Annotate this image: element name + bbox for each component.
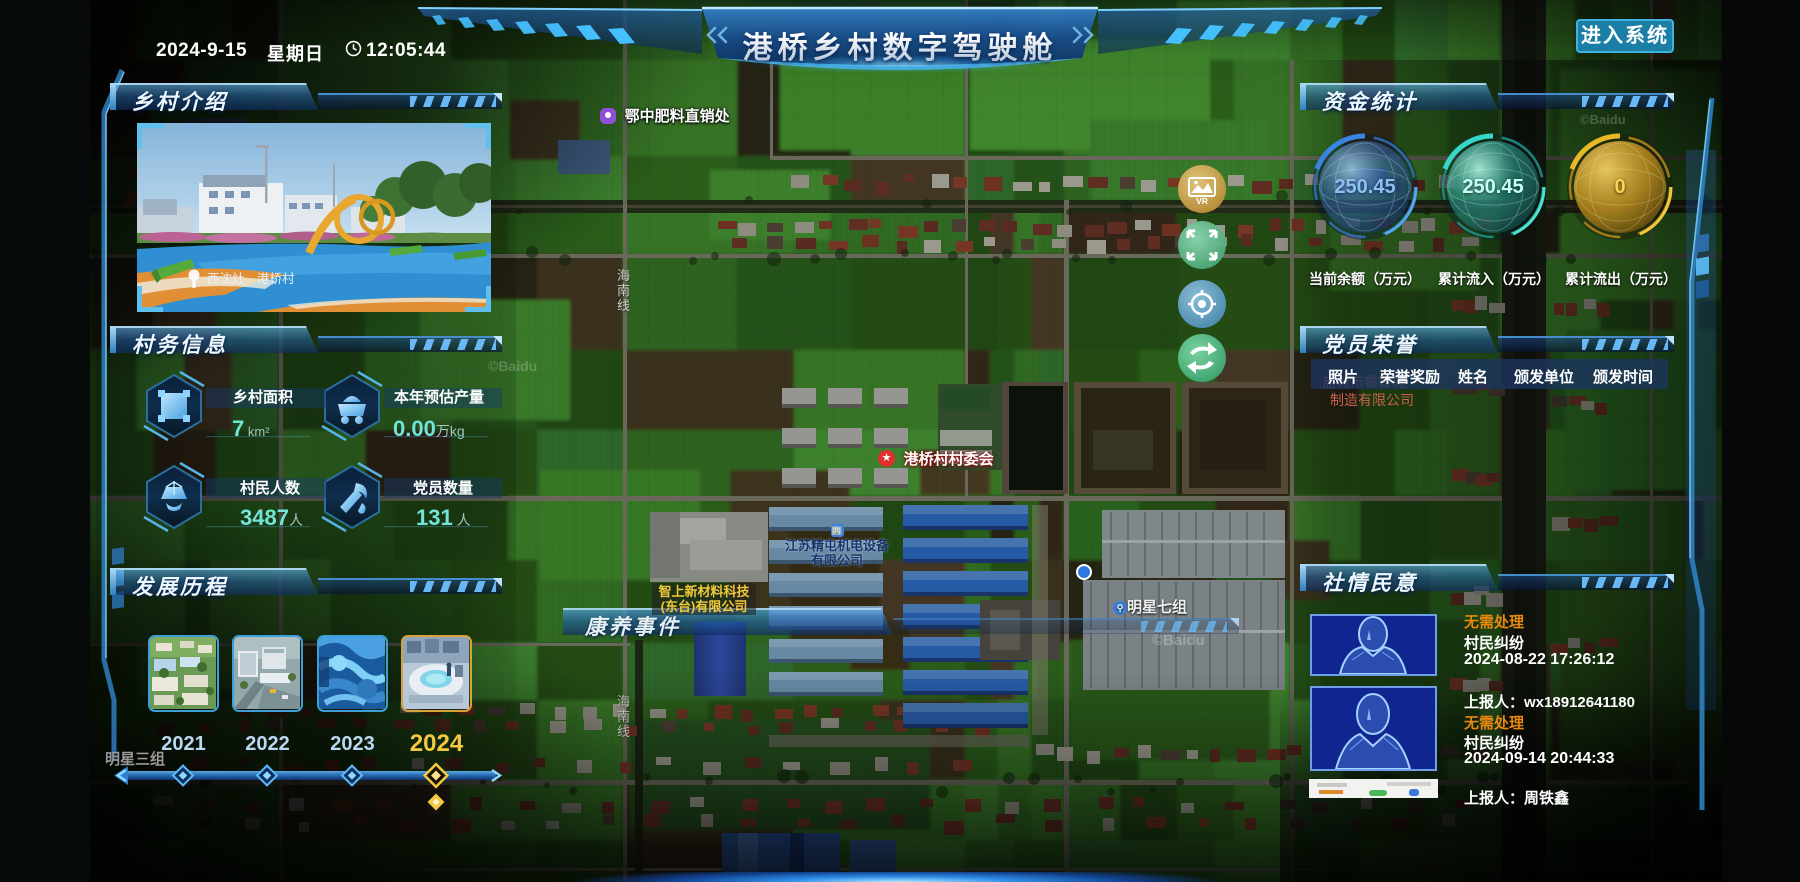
svg-text:VR: VR: [1196, 196, 1208, 206]
svg-text:西沈灶 港桥村: 西沈灶 港桥村: [207, 271, 295, 286]
